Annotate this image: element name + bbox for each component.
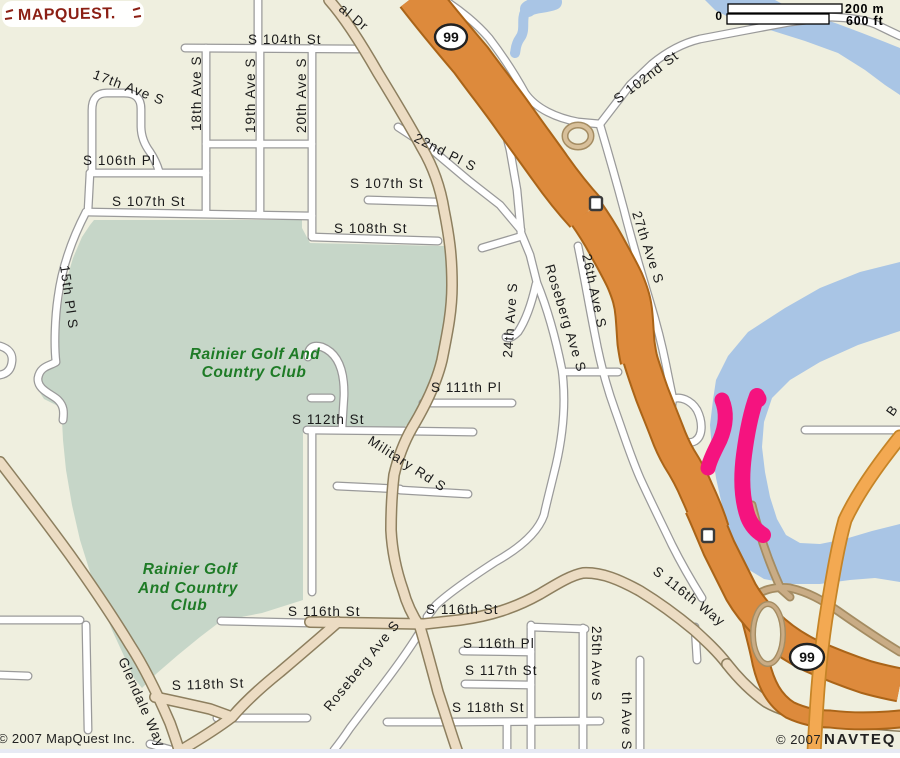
svg-text:S 111th Pl: S 111th Pl	[431, 380, 502, 395]
svg-text:S 118th St: S 118th St	[172, 675, 245, 693]
svg-text:S 108th St: S 108th St	[334, 221, 408, 236]
svg-text:S 116th St: S 116th St	[426, 602, 499, 617]
svg-text:99: 99	[799, 649, 815, 665]
svg-text:S 118th St: S 118th St	[452, 700, 525, 715]
svg-text:S 107th St: S 107th St	[350, 176, 424, 191]
svg-text:Club: Club	[171, 597, 208, 614]
svg-text:S 116th Pl: S 116th Pl	[463, 636, 535, 651]
svg-text:S 104th St: S 104th St	[248, 32, 322, 47]
svg-text:Country Club: Country Club	[202, 364, 307, 381]
svg-text:20th Ave S: 20th Ave S	[294, 57, 309, 133]
svg-text:99: 99	[443, 29, 459, 45]
svg-text:Rainier Golf And: Rainier Golf And	[190, 346, 321, 363]
svg-text:© 2007: © 2007	[776, 732, 821, 747]
svg-text:© 2007 MapQuest Inc.: © 2007 MapQuest Inc.	[0, 731, 135, 746]
svg-text:S 117th St: S 117th St	[465, 663, 538, 678]
svg-text:Rainier Golf: Rainier Golf	[143, 561, 239, 578]
svg-text:0: 0	[715, 9, 722, 23]
svg-text:18th Ave S: 18th Ave S	[189, 55, 204, 131]
svg-text:19th Ave S: 19th Ave S	[243, 57, 258, 133]
svg-text:th Ave S: th Ave S	[619, 692, 634, 750]
svg-text:MAPQUEST.: MAPQUEST.	[18, 5, 116, 24]
svg-text:S 116th St: S 116th St	[288, 604, 361, 619]
svg-text:S 106th Pl: S 106th Pl	[83, 153, 156, 168]
svg-text:And Country: And Country	[137, 580, 239, 597]
svg-text:25th Ave S: 25th Ave S	[589, 626, 604, 702]
svg-text:NAVTEQ: NAVTEQ	[824, 731, 896, 748]
svg-text:600 ft: 600 ft	[846, 14, 883, 28]
svg-text:S 107th St: S 107th St	[112, 194, 186, 209]
svg-text:S 112th St: S 112th St	[292, 412, 365, 427]
